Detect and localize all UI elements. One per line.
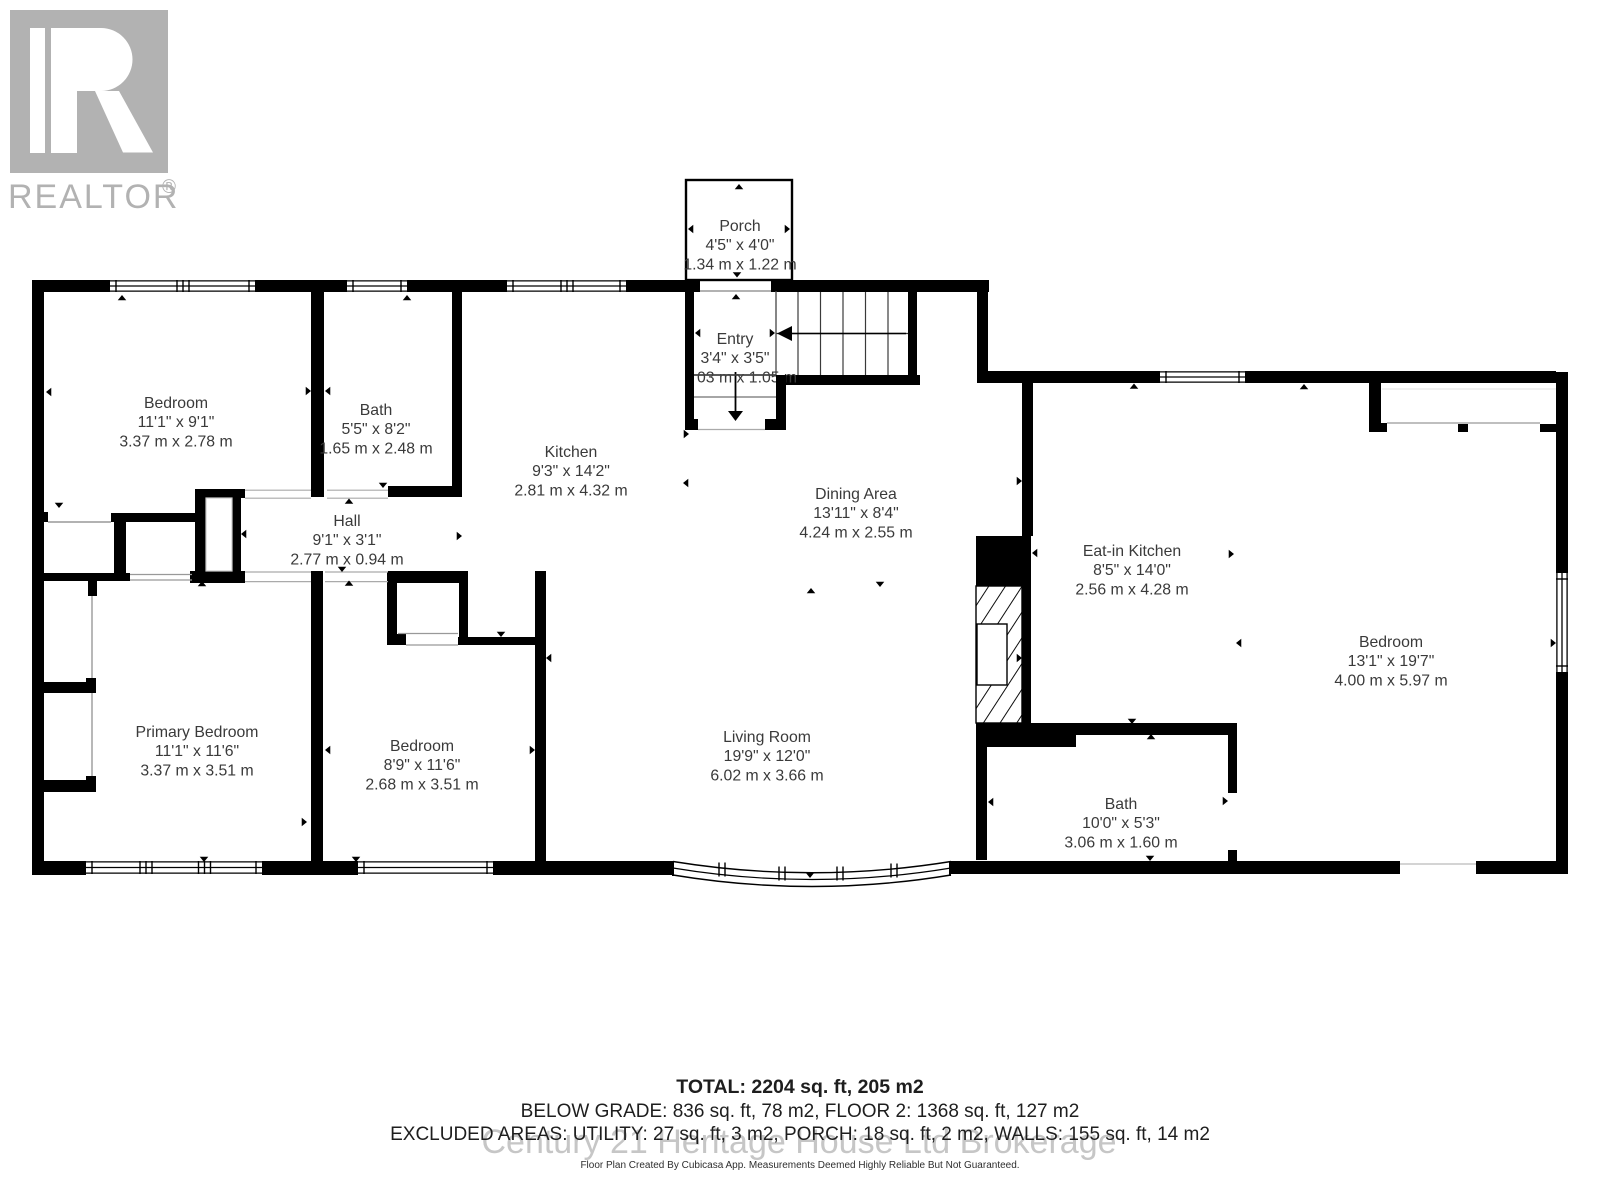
svg-text:8'5" x 14'0": 8'5" x 14'0" xyxy=(1093,562,1171,579)
svg-text:11'1" x 11'6": 11'1" x 11'6" xyxy=(155,743,239,760)
svg-text:Porch: Porch xyxy=(719,218,760,235)
svg-text:2.68 m x 3.51 m: 2.68 m x 3.51 m xyxy=(365,776,478,793)
svg-text:Eat-in Kitchen: Eat-in Kitchen xyxy=(1083,543,1181,560)
svg-text:9'3" x 14'2": 9'3" x 14'2" xyxy=(532,463,610,480)
svg-text:3.37 m x 3.51 m: 3.37 m x 3.51 m xyxy=(140,762,253,779)
svg-text:Bath: Bath xyxy=(360,402,393,419)
svg-text:10'0" x 5'3": 10'0" x 5'3" xyxy=(1082,815,1160,832)
svg-text:1.34 m x 1.22 m: 1.34 m x 1.22 m xyxy=(683,256,796,273)
svg-text:3.37 m x 2.78 m: 3.37 m x 2.78 m xyxy=(119,433,232,450)
svg-text:BELOW GRADE: 836 sq. ft, 78 m2: BELOW GRADE: 836 sq. ft, 78 m2, FLOOR 2:… xyxy=(521,1101,1080,1122)
svg-text:3.06 m x 1.60 m: 3.06 m x 1.60 m xyxy=(1064,834,1177,851)
svg-text:6.02 m x 3.66 m: 6.02 m x 3.66 m xyxy=(710,767,823,784)
svg-text:REALTOR: REALTOR xyxy=(8,178,179,216)
svg-text:®: ® xyxy=(162,177,176,198)
svg-text:Bedroom: Bedroom xyxy=(1359,634,1423,651)
svg-text:Entry: Entry xyxy=(717,331,754,348)
svg-text:Dining Area: Dining Area xyxy=(815,486,897,503)
svg-text:5'5" x 8'2": 5'5" x 8'2" xyxy=(341,421,410,438)
svg-text:9'1" x 3'1": 9'1" x 3'1" xyxy=(312,532,381,549)
svg-text:1.65 m x 2.48 m: 1.65 m x 2.48 m xyxy=(319,440,432,457)
svg-text:8'9" x 11'6": 8'9" x 11'6" xyxy=(384,757,461,774)
svg-text:3'4" x 3'5": 3'4" x 3'5" xyxy=(700,350,769,367)
svg-text:4'5" x 4'0": 4'5" x 4'0" xyxy=(705,237,774,254)
svg-text:Hall: Hall xyxy=(333,513,360,530)
svg-text:2.81 m x 4.32 m: 2.81 m x 4.32 m xyxy=(514,482,627,499)
svg-text:Primary Bedroom: Primary Bedroom xyxy=(136,724,259,741)
svg-text:2.56 m x 4.28 m: 2.56 m x 4.28 m xyxy=(1075,581,1188,598)
svg-text:Floor Plan Created By Cubicasa: Floor Plan Created By Cubicasa App. Meas… xyxy=(580,1160,1019,1171)
svg-text:TOTAL: 2204 sq. ft, 205 m2: TOTAL: 2204 sq. ft, 205 m2 xyxy=(676,1076,924,1098)
svg-text:EXCLUDED AREAS: UTILITY: 27 sq: EXCLUDED AREAS: UTILITY: 27 sq. ft, 3 m2… xyxy=(390,1124,1210,1145)
svg-text:4.24 m x 2.55 m: 4.24 m x 2.55 m xyxy=(799,524,912,541)
svg-text:13'11" x 8'4": 13'11" x 8'4" xyxy=(813,505,898,522)
svg-text:Living Room: Living Room xyxy=(723,729,811,746)
svg-text:13'1" x 19'7": 13'1" x 19'7" xyxy=(1348,653,1435,670)
svg-text:2.77 m x 0.94 m: 2.77 m x 0.94 m xyxy=(290,551,403,568)
svg-text:11'1" x 9'1": 11'1" x 9'1" xyxy=(138,414,215,431)
svg-text:Bedroom: Bedroom xyxy=(144,395,208,412)
svg-text:Bath: Bath xyxy=(1105,796,1138,813)
svg-text:19'9" x 12'0": 19'9" x 12'0" xyxy=(724,748,811,765)
svg-text:Kitchen: Kitchen xyxy=(545,444,598,461)
svg-text:Bedroom: Bedroom xyxy=(390,738,454,755)
svg-text:4.00 m x 5.97 m: 4.00 m x 5.97 m xyxy=(1334,672,1447,689)
